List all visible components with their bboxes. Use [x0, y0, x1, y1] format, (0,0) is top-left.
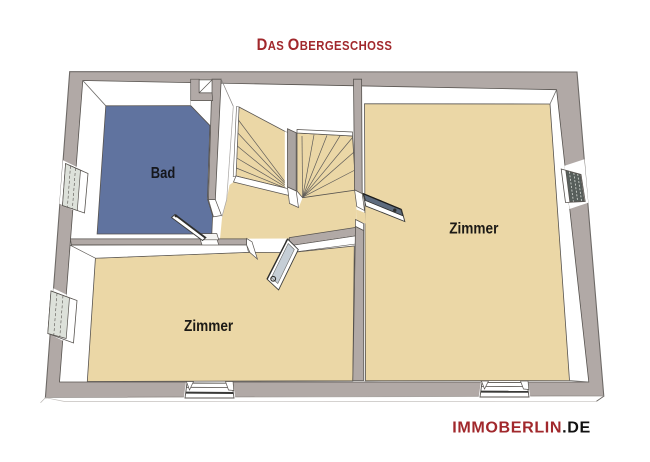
- svg-text:DAS OBERGESCHOSS: DAS OBERGESCHOSS: [257, 35, 393, 54]
- svg-text:IMMOBERLIN.DE: IMMOBERLIN.DE: [452, 420, 591, 437]
- svg-text:Bad: Bad: [151, 165, 176, 182]
- svg-text:Zimmer: Zimmer: [184, 318, 233, 335]
- svg-text:Zimmer: Zimmer: [449, 221, 498, 238]
